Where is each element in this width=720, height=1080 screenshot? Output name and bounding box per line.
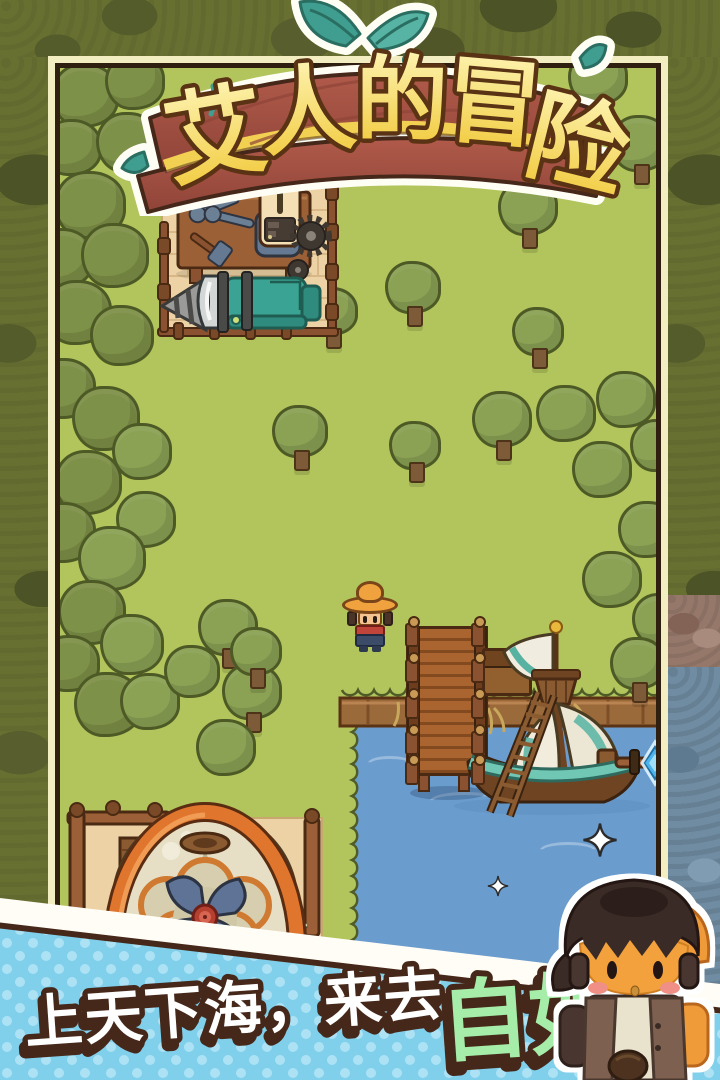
game-title: 艾 人 的 冒 险 xyxy=(156,47,630,212)
sparkle-icon xyxy=(582,822,618,863)
player-hat-icon xyxy=(356,581,384,603)
dock-post xyxy=(405,695,419,719)
dock-post xyxy=(471,761,485,785)
dock-post xyxy=(405,659,419,683)
dock-post xyxy=(471,659,485,683)
outer-border-stones xyxy=(668,595,720,667)
tree xyxy=(90,305,154,366)
tree xyxy=(81,223,149,288)
tree xyxy=(630,419,656,472)
tree xyxy=(230,627,282,676)
tree xyxy=(389,421,441,470)
dock-post xyxy=(471,623,485,647)
title-char: 艾 xyxy=(156,72,274,200)
tree xyxy=(512,307,564,356)
tree xyxy=(572,441,632,498)
player-hair xyxy=(347,611,357,626)
tree xyxy=(272,405,328,458)
mascot-avatar xyxy=(548,866,720,1080)
tree xyxy=(610,637,656,690)
title-char: 人 xyxy=(256,55,360,169)
title-sign: 艾 人 的 冒 险 xyxy=(110,0,630,216)
game-screenshot[interactable]: 艾 人 的 冒 险 上天下海，来去 上天下海，来去 自如 自如 xyxy=(0,0,720,1080)
gem-icon xyxy=(642,742,656,784)
title-char: 的 xyxy=(356,50,448,152)
player-pants xyxy=(355,634,385,647)
tree xyxy=(618,501,656,558)
tree xyxy=(472,391,532,448)
tree xyxy=(536,385,596,442)
dock-post xyxy=(471,731,485,755)
tree xyxy=(100,614,164,675)
dock-post xyxy=(405,731,419,755)
player-character xyxy=(342,570,398,656)
dock-post xyxy=(405,623,419,647)
dock-post xyxy=(405,761,419,785)
player-hair xyxy=(383,611,393,626)
tree xyxy=(385,261,441,314)
dock-post xyxy=(471,695,485,719)
